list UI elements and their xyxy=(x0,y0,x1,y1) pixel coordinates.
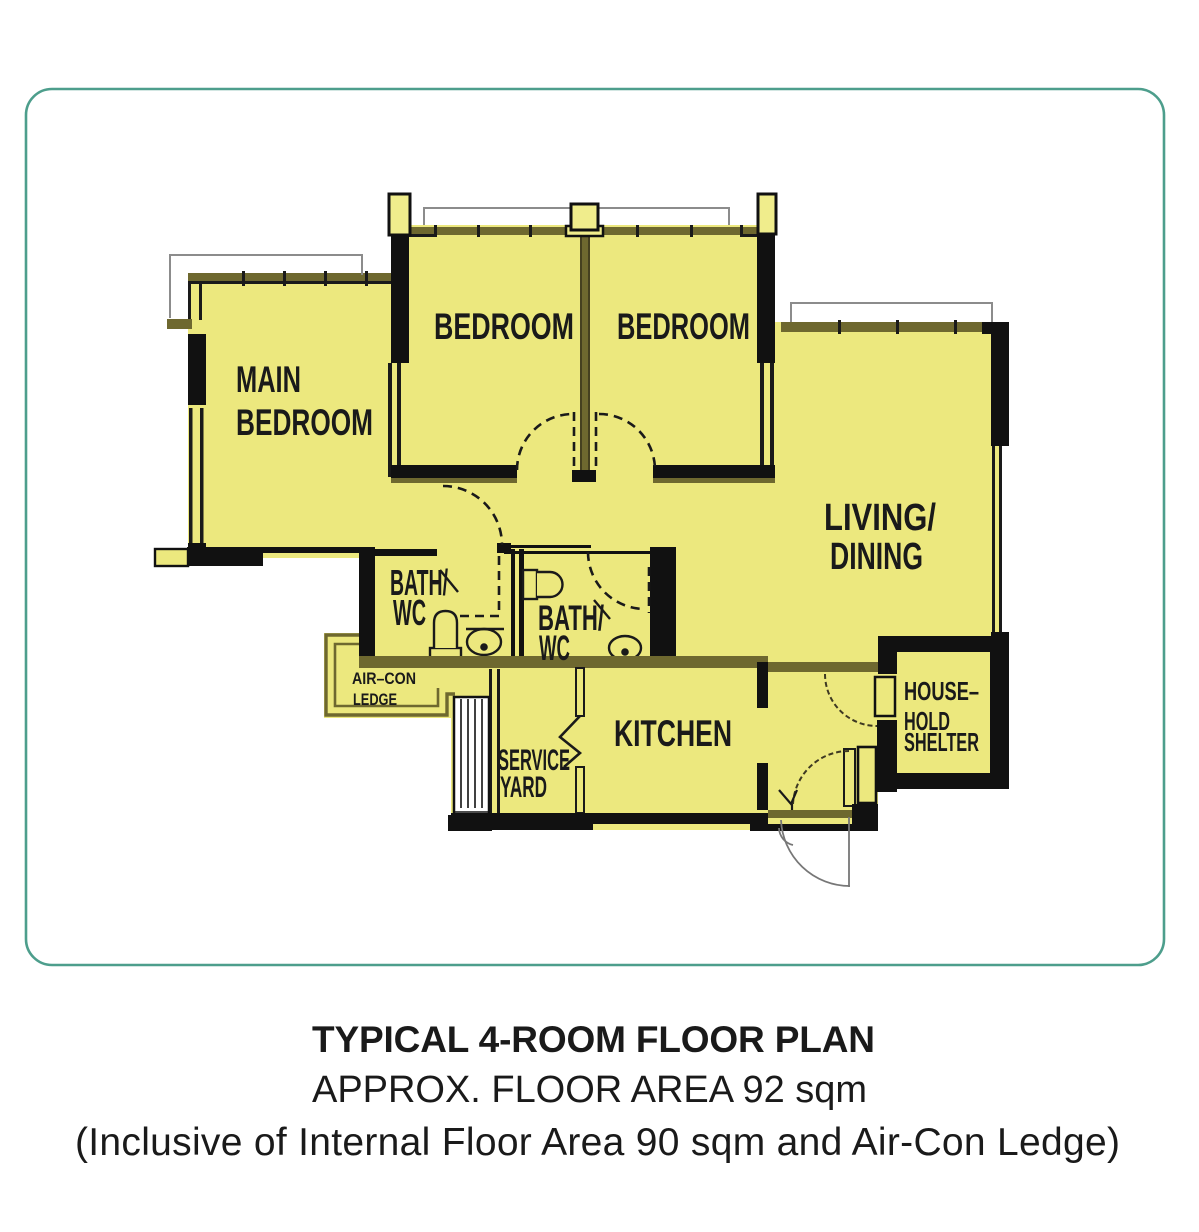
svg-text:WC: WC xyxy=(393,592,426,633)
svg-text:SHELTER: SHELTER xyxy=(904,727,979,757)
svg-text:AIR–CON: AIR–CON xyxy=(352,669,416,688)
svg-text:(Inclusive of Internal Floor A: (Inclusive of Internal Floor Area 90 sqm… xyxy=(75,1121,1120,1164)
svg-text:BEDROOM: BEDROOM xyxy=(236,402,373,443)
svg-text:KITCHEN: KITCHEN xyxy=(614,713,732,754)
svg-text:MAIN: MAIN xyxy=(236,359,301,400)
svg-text:LEDGE: LEDGE xyxy=(353,690,397,709)
svg-text:BEDROOM: BEDROOM xyxy=(617,306,750,347)
svg-text:LIVING/: LIVING/ xyxy=(824,497,936,539)
svg-text:WC: WC xyxy=(539,629,570,668)
svg-text:DINING: DINING xyxy=(830,536,923,578)
svg-text:HOUSE–: HOUSE– xyxy=(904,676,979,706)
svg-text:YARD: YARD xyxy=(500,771,547,804)
svg-text:APPROX. FLOOR AREA 92 sqm: APPROX. FLOOR AREA 92 sqm xyxy=(312,1069,867,1111)
svg-text:BEDROOM: BEDROOM xyxy=(434,306,574,347)
svg-text:TYPICAL 4-ROOM FLOOR PLAN: TYPICAL 4-ROOM FLOOR PLAN xyxy=(312,1019,875,1060)
